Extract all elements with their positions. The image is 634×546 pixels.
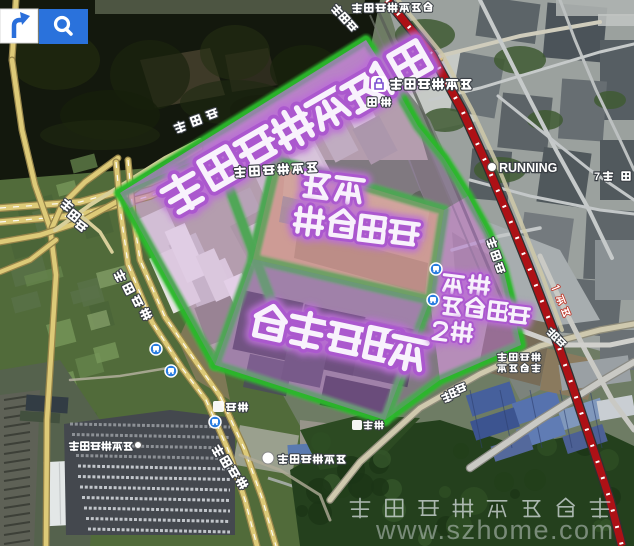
svg-text:RUNNING: RUNNING bbox=[499, 161, 557, 175]
svg-text:www.szhome.com: www.szhome.com bbox=[375, 515, 615, 545]
svg-text:7: 7 bbox=[594, 171, 600, 183]
